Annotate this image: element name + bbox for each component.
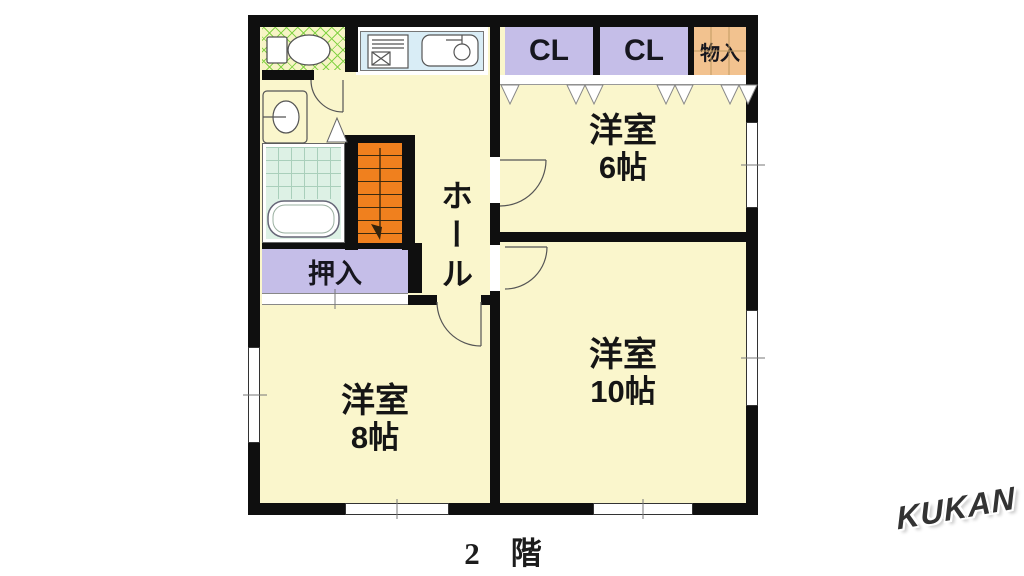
room-west6-label: 洋室 6帖 xyxy=(500,100,746,196)
room-west10-size: 10帖 xyxy=(590,375,655,408)
room-west10-name: 洋室 xyxy=(589,337,657,373)
folding-door-chevrons xyxy=(500,75,746,85)
storage-label: 物入 xyxy=(700,37,740,66)
wall-right xyxy=(746,15,758,515)
closet-cl-1-label: CL xyxy=(529,34,569,68)
storage-mono-ire: 物入 xyxy=(694,27,746,75)
room-west10-label: 洋室 10帖 xyxy=(500,322,746,422)
toilet-room-floor xyxy=(262,27,345,70)
window-west8-left xyxy=(248,347,260,443)
wall-cl-divider-1 xyxy=(593,27,600,75)
staircase xyxy=(358,143,402,250)
closet-cl-1: CL xyxy=(505,27,593,75)
oshiire-label: 押入 xyxy=(308,252,362,291)
floor-title: 2 階 xyxy=(248,528,758,573)
wall-oshiire-top xyxy=(262,243,422,249)
room-west6-name: 洋室 xyxy=(589,113,657,149)
kitchen-counter-top xyxy=(360,31,484,71)
closet-cl-2: CL xyxy=(600,27,688,75)
window-west6-right xyxy=(746,122,758,208)
window-west10-right xyxy=(746,310,758,406)
kukan-logo: KUKAN xyxy=(888,478,1024,539)
bathroom-wash-area xyxy=(266,147,341,199)
wall-hall-east-b xyxy=(490,203,500,245)
bathroom-tub-area xyxy=(266,199,341,239)
oshiire-sliding-door xyxy=(262,293,408,305)
wall-stairs-left xyxy=(345,135,358,250)
door-opening-west10 xyxy=(490,245,500,291)
window-west10-bottom xyxy=(593,503,693,515)
wall-top xyxy=(248,15,758,27)
wall-hall-east-a xyxy=(490,27,500,157)
window-west8-bottom xyxy=(345,503,449,515)
wall-toilet-bottom xyxy=(262,70,314,80)
floorplan-canvas: CL CL 物入 押入 洋室 6帖 xyxy=(0,0,1024,576)
wall-hall-south-a xyxy=(408,295,437,305)
room-west6-size: 6帖 xyxy=(599,151,647,184)
wall-hall-east-c xyxy=(490,291,500,503)
wall-toilet-right xyxy=(345,27,358,72)
wall-oshiire-right xyxy=(408,249,422,293)
oshiire-closet: 押入 xyxy=(262,249,408,293)
door-opening-west6 xyxy=(490,157,500,203)
room-west8-size: 8帖 xyxy=(351,421,399,454)
closet-cl-2-label: CL xyxy=(624,34,664,68)
room-west8-name: 洋室 xyxy=(341,383,409,419)
room-west8-label: 洋室 8帖 xyxy=(260,368,490,468)
wall-stairs-right xyxy=(402,135,415,250)
wall-between-6-10 xyxy=(500,232,746,242)
hall-label: ホール xyxy=(436,150,478,325)
wall-hall-south-b xyxy=(481,295,490,305)
wall-cl-divider-2 xyxy=(688,27,694,75)
